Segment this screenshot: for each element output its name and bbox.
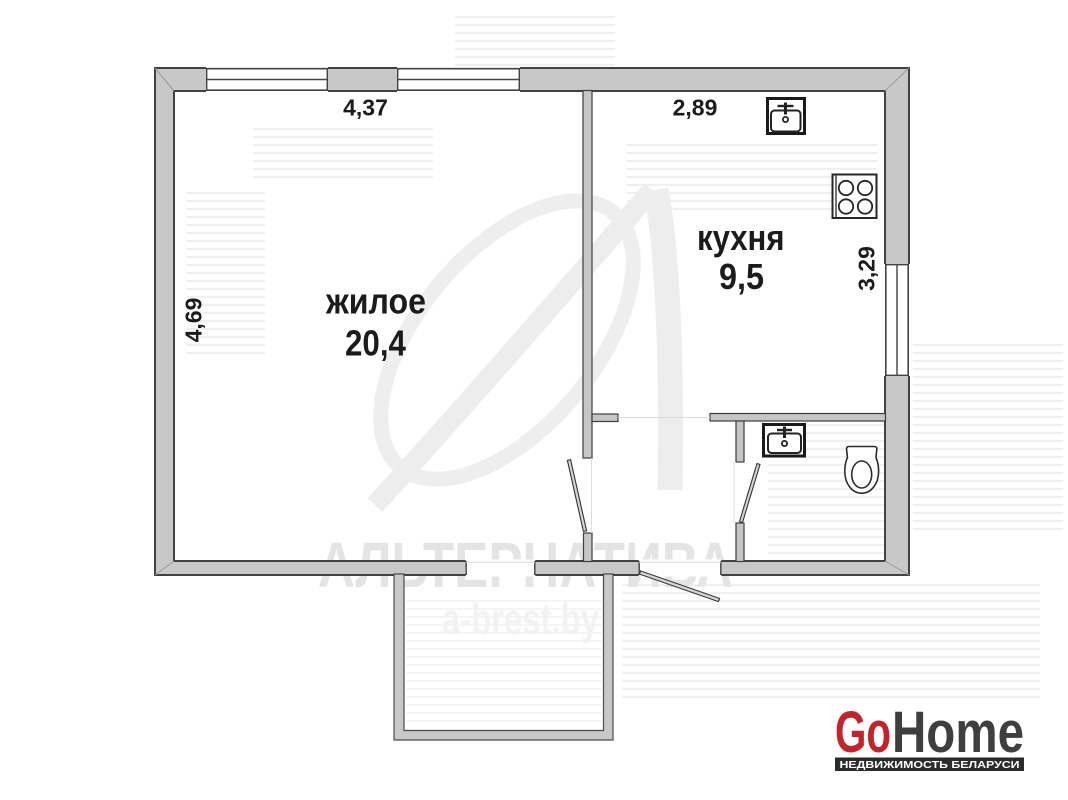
svg-text:2,89: 2,89: [673, 95, 718, 121]
svg-text:20,4: 20,4: [345, 323, 406, 364]
svg-text:кухня: кухня: [697, 217, 785, 258]
svg-text:4,69: 4,69: [181, 298, 207, 343]
svg-text:Go: Go: [835, 700, 891, 765]
svg-text:Home: Home: [892, 700, 1024, 765]
svg-text:4,37: 4,37: [343, 95, 388, 121]
svg-text:9,5: 9,5: [719, 256, 764, 297]
svg-text:жилое: жилое: [325, 281, 426, 322]
svg-text:НЕДВИЖИМОСТЬ БЕЛАРУСИ: НЕДВИЖИМОСТЬ БЕЛАРУСИ: [840, 759, 1020, 771]
svg-text:3,29: 3,29: [854, 246, 880, 291]
svg-text:a-brest.by: a-brest.by: [442, 595, 599, 644]
